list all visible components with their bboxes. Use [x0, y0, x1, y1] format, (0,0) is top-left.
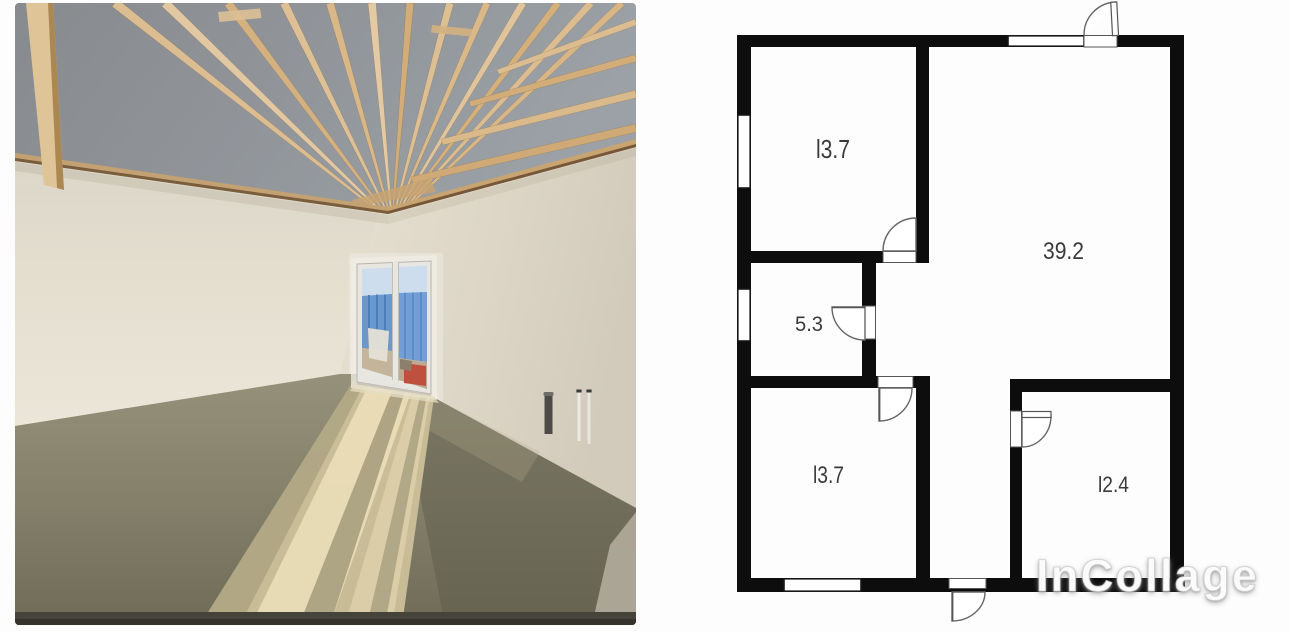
svg-text:l3.7: l3.7	[816, 134, 850, 164]
svg-text:5.3: 5.3	[795, 313, 823, 336]
svg-text:39.2: 39.2	[1043, 238, 1084, 265]
svg-text:l2.4: l2.4	[1098, 472, 1129, 497]
svg-text:l3.7: l3.7	[813, 462, 844, 489]
